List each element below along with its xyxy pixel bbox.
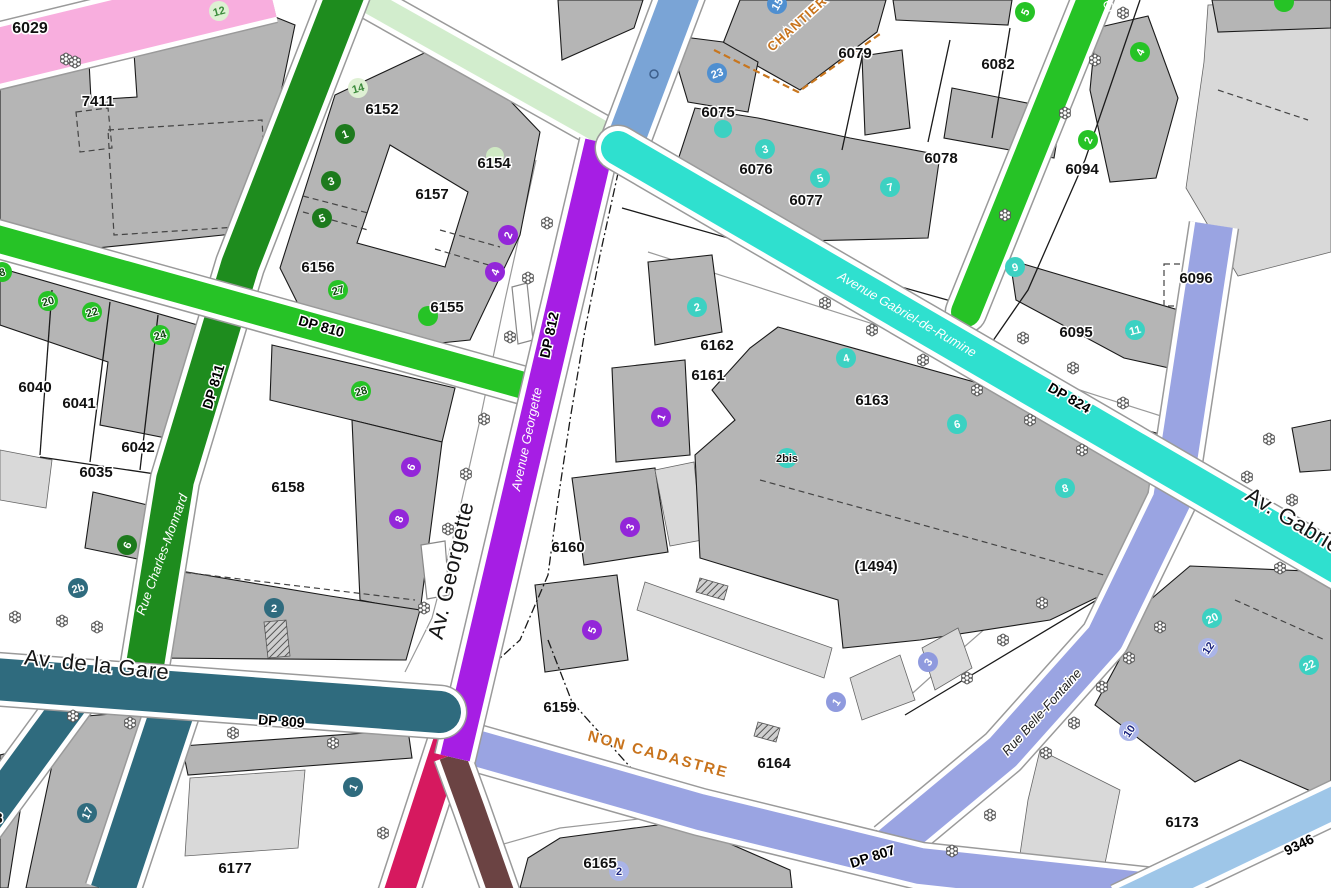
tree-lobe: [1294, 496, 1298, 500]
tree-lobe: [1158, 629, 1162, 633]
tree-lobe: [505, 333, 509, 337]
tree-icon: [542, 217, 553, 229]
parcel-number-label: 6094: [1065, 161, 1099, 178]
tree-lobe: [1068, 364, 1072, 368]
tree-lobe: [979, 386, 983, 390]
parcel-number-label: 6154: [477, 155, 511, 172]
tree-lobe: [542, 219, 546, 223]
parcel-number-label: 6152: [365, 101, 398, 118]
address-marker: 14: [348, 78, 368, 98]
tree-lobe: [947, 847, 951, 851]
tree-lobe: [1007, 211, 1011, 215]
marker-number: 2: [271, 603, 277, 615]
tree-icon: [505, 331, 516, 343]
parcel-number-label: 6035: [79, 464, 112, 481]
address-marker: 1: [335, 124, 355, 144]
tree-icon: [1068, 362, 1079, 374]
building: [893, 0, 1012, 25]
parcel-number-label: 6164: [757, 755, 791, 772]
tree-lobe: [228, 729, 232, 733]
tree-lobe: [972, 386, 976, 390]
tree-lobe: [10, 613, 14, 617]
parcel-number-label: 6163: [855, 392, 888, 409]
address-marker: 1: [826, 692, 846, 712]
tree-lobe: [1090, 56, 1094, 60]
parcel-number-label: 6076: [739, 161, 772, 178]
tree-lobe: [1084, 446, 1088, 450]
tree-lobe: [17, 613, 21, 617]
building: [558, 0, 643, 60]
tree-lobe: [1104, 683, 1108, 687]
parcel-number-label: 7411: [82, 93, 115, 110]
tree-icon: [461, 468, 472, 480]
tree-icon: [820, 297, 831, 309]
tree-lobe: [231, 735, 235, 739]
tree-icon: [1124, 652, 1135, 664]
tree-lobe: [1018, 334, 1022, 338]
address-marker: 2: [1078, 130, 1098, 150]
tree-lobe: [998, 636, 1002, 640]
tree-lobe: [1080, 452, 1084, 456]
ramp-hatch: [696, 578, 728, 600]
tree-lobe: [1048, 749, 1052, 753]
tree-icon: [918, 354, 929, 366]
tree-icon: [1037, 597, 1048, 609]
tree-lobe: [71, 718, 75, 722]
tree-lobe: [1037, 599, 1041, 603]
address-marker: 23: [707, 63, 727, 83]
tree-lobe: [486, 415, 490, 419]
address-marker: 22: [82, 302, 102, 322]
tree-lobe: [1124, 654, 1128, 658]
tree-icon: [867, 324, 878, 336]
tree-lobe: [1069, 719, 1073, 723]
building: [182, 730, 412, 775]
building: [1090, 16, 1178, 182]
tree-lobe: [1067, 109, 1071, 113]
address-marker: 7: [880, 177, 900, 197]
tree-icon: [985, 809, 996, 821]
tree-lobe: [1097, 683, 1101, 687]
address-marker: 8: [389, 509, 409, 529]
tree-lobe: [68, 712, 72, 716]
parcel-number-label: 6040: [18, 379, 51, 396]
tree-lobe: [1021, 340, 1025, 344]
address-marker: 2: [687, 297, 707, 317]
parcel-number-label: 6082: [981, 56, 1014, 73]
building: [185, 770, 305, 856]
address-marker: 4: [1130, 42, 1150, 62]
tree-lobe: [530, 274, 534, 278]
tree-lobe: [443, 525, 447, 529]
parcel-number-label: 6160: [551, 539, 584, 556]
parcel-number-label: 6162: [700, 337, 733, 354]
address-marker: 3: [321, 171, 341, 191]
tree-lobe: [422, 610, 426, 614]
building: [1292, 420, 1331, 472]
marker-number: 2bis: [776, 453, 798, 465]
tree-icon: [523, 272, 534, 284]
address-marker: 8: [1055, 478, 1075, 498]
tree-lobe: [1118, 399, 1122, 403]
tree-icon: [1242, 471, 1253, 483]
address-marker: 6: [117, 535, 137, 555]
tree-lobe: [95, 629, 99, 633]
tree-lobe: [1041, 749, 1045, 753]
tree-lobe: [1275, 564, 1279, 568]
tree-lobe: [1044, 755, 1048, 759]
address-marker: 24: [150, 325, 170, 345]
tree-lobe: [1131, 654, 1135, 658]
tree-lobe: [381, 835, 385, 839]
tree-lobe: [1060, 109, 1064, 113]
tree-lobe: [867, 326, 871, 330]
tree-lobe: [874, 326, 878, 330]
tree-lobe: [921, 362, 925, 366]
tree-icon: [1118, 397, 1129, 409]
address-marker: 6: [401, 457, 421, 477]
building: [0, 450, 52, 508]
tree-icon: [479, 413, 490, 425]
parcel-number-label: 6029: [12, 20, 48, 37]
road-point: [650, 70, 658, 78]
tree-lobe: [70, 58, 74, 62]
tree-lobe: [870, 332, 874, 336]
tree-lobe: [985, 811, 989, 815]
address-marker: 3: [620, 517, 640, 537]
address-marker: 5: [582, 620, 602, 640]
map-canvas[interactable]: DP 810DP 811DP 812DP 824DP 809DP 8079346…: [0, 0, 1331, 888]
tree-lobe: [950, 853, 954, 857]
tree-lobe: [378, 829, 382, 833]
tree-lobe: [1072, 725, 1076, 729]
tree-lobe: [827, 299, 831, 303]
address-marker: 3: [755, 139, 775, 159]
tree-lobe: [92, 623, 96, 627]
tree-icon: [1077, 444, 1088, 456]
parcel-number-label: (1494): [854, 558, 897, 575]
tree-lobe: [385, 829, 389, 833]
address-marker: 10: [1119, 721, 1139, 741]
tree-lobe: [1077, 446, 1081, 450]
tree-lobe: [1121, 15, 1125, 19]
parcel-number-label: 6165: [583, 855, 616, 872]
tree-lobe: [128, 725, 132, 729]
tree-icon: [125, 717, 136, 729]
parcel-number-label: 6158: [271, 479, 304, 496]
tree-icon: [10, 611, 21, 623]
parcel-number-label: 6077: [789, 192, 822, 209]
tree-lobe: [969, 674, 973, 678]
address-marker: 12: [1198, 638, 1218, 658]
tree-lobe: [1097, 56, 1101, 60]
cadastral-map: DP 810DP 811DP 812DP 824DP 809DP 8079346…: [0, 0, 1331, 888]
tree-lobe: [1162, 623, 1166, 627]
tree-icon: [328, 737, 339, 749]
address-marker: 20: [1202, 608, 1222, 628]
tree-lobe: [464, 476, 468, 480]
parcel-number-label: 6161: [691, 367, 724, 384]
tree-lobe: [965, 680, 969, 684]
parcel-number-label: 6155: [430, 299, 463, 316]
address-marker: 22: [1299, 655, 1319, 675]
tree-lobe: [57, 617, 61, 621]
building: [648, 255, 722, 345]
tree-lobe: [918, 356, 922, 360]
tree-lobe: [1032, 416, 1036, 420]
parcel-number-label: 6156: [301, 259, 334, 276]
address-marker: 2: [498, 225, 518, 245]
tree-icon: [1090, 54, 1101, 66]
address-marker: 3: [918, 652, 938, 672]
tree-lobe: [1025, 416, 1029, 420]
tree-lobe: [1271, 435, 1275, 439]
parcel-number-label: 6023: [0, 810, 3, 827]
tree-icon: [962, 672, 973, 684]
tree-lobe: [1076, 719, 1080, 723]
ramp-hatch: [264, 620, 290, 658]
tree-lobe: [523, 274, 527, 278]
address-marker: 11: [1125, 320, 1145, 340]
address-marker: 2b: [68, 578, 88, 598]
tree-lobe: [331, 745, 335, 749]
tree-lobe: [988, 817, 992, 821]
tree-lobe: [992, 811, 996, 815]
building: [637, 582, 832, 678]
tree-lobe: [1075, 364, 1079, 368]
tree-lobe: [1125, 9, 1129, 13]
building: [850, 655, 915, 720]
tree-icon: [1000, 209, 1011, 221]
tree-lobe: [549, 219, 553, 223]
tree-lobe: [1125, 399, 1129, 403]
address-marker: 5: [312, 208, 332, 228]
parcel-number-label: 6042: [121, 439, 154, 456]
tree-icon: [1264, 433, 1275, 445]
tree-lobe: [1100, 689, 1104, 693]
tree-lobe: [64, 61, 68, 65]
parcel-number-label: 6095: [1059, 324, 1092, 341]
address-marker: 28: [351, 381, 371, 401]
tree-lobe: [1093, 62, 1097, 66]
tree-lobe: [1040, 605, 1044, 609]
tree-lobe: [823, 305, 827, 309]
tree-lobe: [1245, 479, 1249, 483]
address-marker: 20: [38, 291, 58, 311]
tree-lobe: [1242, 473, 1246, 477]
tree-lobe: [1278, 570, 1282, 574]
tree-lobe: [1028, 422, 1032, 426]
tree-lobe: [1127, 660, 1131, 664]
tree-icon: [1069, 717, 1080, 729]
tree-lobe: [1001, 642, 1005, 646]
tree-lobe: [1071, 370, 1075, 374]
building: [572, 468, 668, 565]
address-marker: 6: [947, 414, 967, 434]
tree-lobe: [468, 470, 472, 474]
address-marker: 5: [1015, 2, 1035, 22]
tree-lobe: [1267, 441, 1271, 445]
tree-lobe: [64, 617, 68, 621]
tree-lobe: [77, 58, 81, 62]
tree-icon: [1275, 562, 1286, 574]
road-name-label: DP 809: [258, 711, 306, 730]
tree-icon: [378, 827, 389, 839]
tree-lobe: [1005, 636, 1009, 640]
tree-icon: [1018, 332, 1029, 344]
address-marker: 4: [836, 348, 856, 368]
tree-icon: [1155, 621, 1166, 633]
parcel-number-label: 6157: [415, 186, 448, 203]
tree-icon: [57, 615, 68, 627]
tree-lobe: [545, 225, 549, 229]
address-marker: 1: [651, 407, 671, 427]
tree-lobe: [73, 64, 77, 68]
address-blob: [714, 120, 732, 138]
tree-lobe: [75, 712, 79, 716]
tree-lobe: [512, 333, 516, 337]
parcel-number-label: 6096: [1179, 270, 1212, 287]
parcel-number-label: 6177: [218, 860, 251, 877]
tree-lobe: [419, 604, 423, 608]
address-marker: 17: [77, 803, 97, 823]
tree-icon: [1041, 747, 1052, 759]
tree-lobe: [335, 739, 339, 743]
building: [535, 575, 628, 672]
tree-lobe: [1025, 334, 1029, 338]
tree-icon: [972, 384, 983, 396]
parcel-number-label: 6075: [701, 104, 734, 121]
tree-lobe: [962, 674, 966, 678]
tree-lobe: [975, 392, 979, 396]
tree-lobe: [13, 619, 17, 623]
tree-lobe: [508, 339, 512, 343]
tree-icon: [228, 727, 239, 739]
tree-lobe: [328, 739, 332, 743]
parcel-boundary-line: [842, 48, 864, 150]
tree-lobe: [1003, 217, 1007, 221]
address-marker: 27: [328, 280, 348, 300]
address-marker: 12: [209, 1, 229, 21]
parcel-number-label: 6159: [543, 699, 576, 716]
tree-lobe: [1287, 496, 1291, 500]
building: [612, 360, 690, 462]
tree-lobe: [925, 356, 929, 360]
tree-lobe: [461, 470, 465, 474]
parcel-number-label: 6079: [838, 45, 871, 62]
tree-icon: [70, 56, 81, 68]
tree-lobe: [132, 719, 136, 723]
tree-lobe: [1155, 623, 1159, 627]
building: [862, 50, 910, 135]
address-marker: 2: [264, 598, 284, 618]
tree-lobe: [526, 280, 530, 284]
address-marker: 9: [1005, 257, 1025, 277]
tree-lobe: [61, 55, 65, 59]
road-band: [966, 0, 1100, 312]
address-marker: 4: [485, 262, 505, 282]
tree-lobe: [1121, 405, 1125, 409]
tree-lobe: [1282, 564, 1286, 568]
address-marker: 5: [810, 168, 830, 188]
tree-lobe: [954, 847, 958, 851]
address-marker: 1: [343, 777, 363, 797]
tree-lobe: [479, 415, 483, 419]
tree-lobe: [820, 299, 824, 303]
tree-lobe: [1000, 211, 1004, 215]
tree-icon: [1060, 107, 1071, 119]
tree-lobe: [1249, 473, 1253, 477]
parcel-number-label: 6173: [1165, 814, 1198, 831]
tree-icon: [998, 634, 1009, 646]
tree-lobe: [482, 421, 486, 425]
tree-lobe: [99, 623, 103, 627]
tree-icon: [1097, 681, 1108, 693]
tree-lobe: [1044, 599, 1048, 603]
tree-lobe: [60, 623, 64, 627]
tree-lobe: [125, 719, 129, 723]
marker-number: 2: [616, 866, 622, 878]
parcel-number-label: 6078: [924, 150, 957, 167]
parcel-number-label: 6041: [62, 395, 95, 412]
building: [1212, 0, 1331, 32]
tree-icon: [947, 845, 958, 857]
tree-lobe: [1264, 435, 1268, 439]
tree-icon: [92, 621, 103, 633]
tree-icon: [68, 710, 79, 722]
tree-lobe: [1063, 115, 1067, 119]
tree-icon: [1025, 414, 1036, 426]
tree-lobe: [235, 729, 239, 733]
ramp-hatch: [754, 722, 780, 742]
